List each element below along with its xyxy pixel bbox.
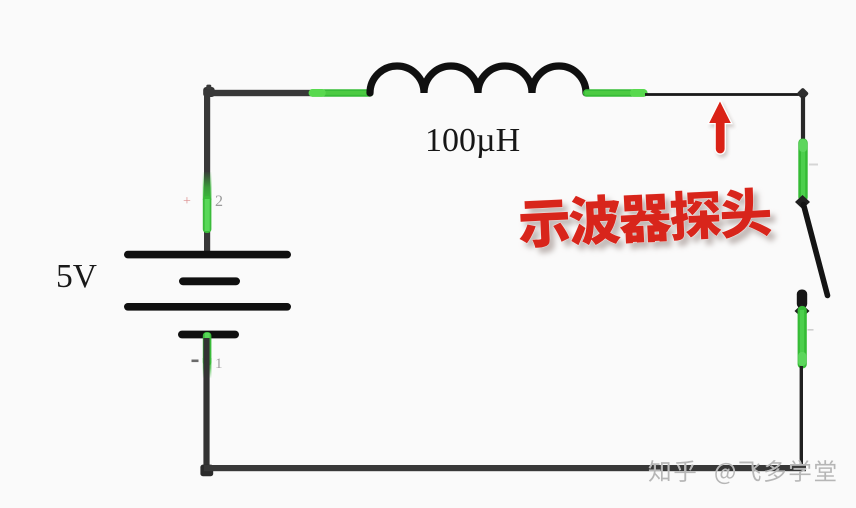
svg-text:1: 1 bbox=[215, 356, 223, 372]
svg-text:100µH: 100µH bbox=[425, 122, 520, 159]
svg-text:2: 2 bbox=[215, 193, 223, 210]
svg-text:+: + bbox=[183, 194, 191, 209]
svg-text:5V: 5V bbox=[56, 258, 97, 295]
